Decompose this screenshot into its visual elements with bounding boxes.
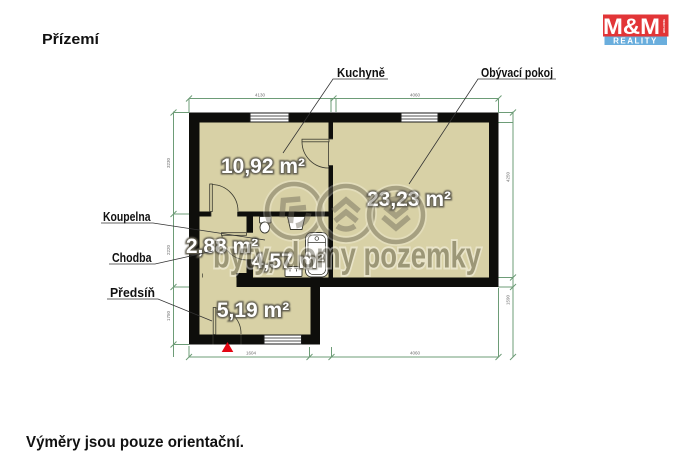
svg-text:10,92 m²: 10,92 m² xyxy=(221,155,305,178)
svg-text:5,19 m²: 5,19 m² xyxy=(217,299,289,322)
svg-text:1750: 1750 xyxy=(166,310,171,321)
svg-text:1590: 1590 xyxy=(506,294,511,305)
svg-text:Koupelna: Koupelna xyxy=(103,210,151,224)
svg-text:Chodba: Chodba xyxy=(112,251,152,265)
svg-text:Obývací pokoj: Obývací pokoj xyxy=(481,66,553,80)
svg-text:2220: 2220 xyxy=(166,244,171,255)
svg-text:4060: 4060 xyxy=(410,351,421,356)
svg-text:Kuchyně: Kuchyně xyxy=(337,66,385,80)
svg-text:byty, domy pozemky: byty, domy pozemky xyxy=(213,235,481,276)
svg-text:3230: 3230 xyxy=(166,157,171,168)
svg-text:4130: 4130 xyxy=(255,93,266,98)
svg-text:M&M: M&M xyxy=(603,14,660,39)
svg-text:Předsíň: Předsíň xyxy=(110,286,155,300)
svg-text:REALITY: REALITY xyxy=(613,37,658,46)
svg-text:4250: 4250 xyxy=(506,171,511,182)
svg-text:Přízemí: Přízemí xyxy=(42,32,100,48)
svg-text:1604: 1604 xyxy=(246,351,257,356)
svg-text:HOLDING: HOLDING xyxy=(662,19,666,33)
svg-text:Výměry jsou pouze orientační.: Výměry jsou pouze orientační. xyxy=(26,434,244,451)
svg-text:4060: 4060 xyxy=(410,93,421,98)
